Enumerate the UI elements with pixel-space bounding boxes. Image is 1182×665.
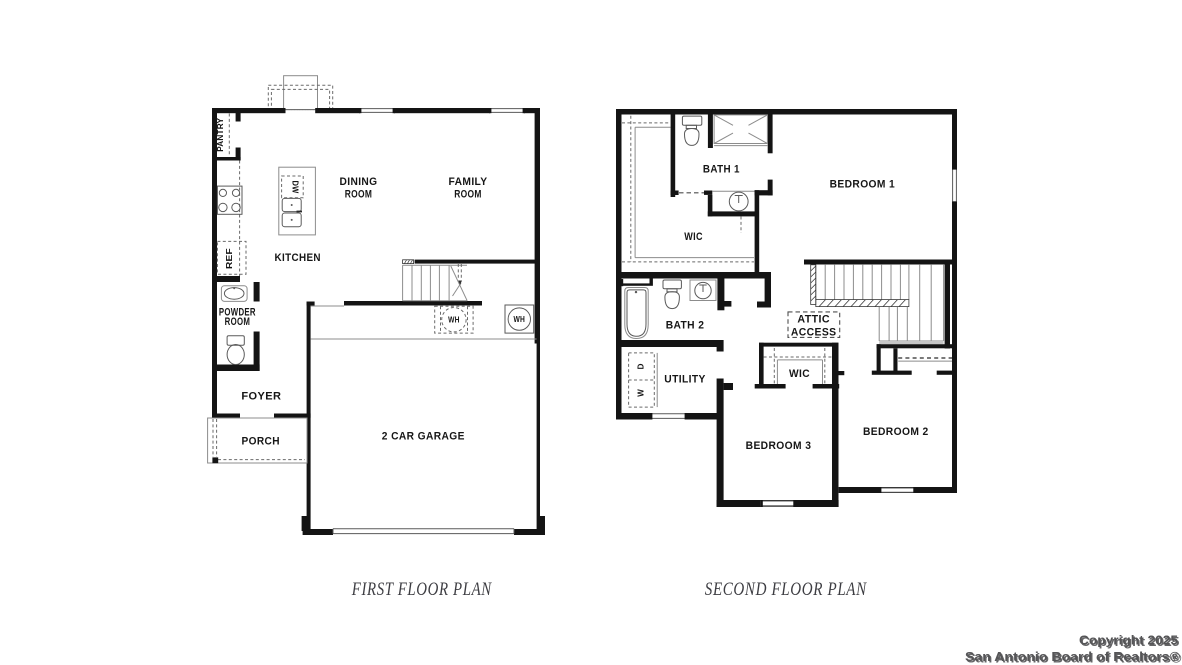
svg-text:W: W (636, 389, 645, 397)
svg-text:Copyright 2025: Copyright 2025 (1080, 635, 1179, 649)
svg-text:ROOM: ROOM (345, 188, 373, 200)
svg-text:WH: WH (514, 315, 526, 324)
svg-text:ACCESS: ACCESS (791, 326, 837, 338)
svg-text:BEDROOM 3: BEDROOM 3 (746, 440, 812, 452)
svg-text:ATTIC: ATTIC (797, 314, 830, 326)
svg-text:UTILITY: UTILITY (664, 374, 706, 386)
svg-text:BEDROOM 2: BEDROOM 2 (863, 426, 929, 438)
svg-text:WH: WH (448, 315, 460, 324)
svg-text:ROOM: ROOM (454, 188, 482, 200)
svg-text:BEDROOM 1: BEDROOM 1 (830, 179, 896, 191)
svg-text:SECOND FLOOR PLAN: SECOND FLOOR PLAN (705, 579, 867, 600)
svg-text:BATH 2: BATH 2 (666, 319, 705, 331)
svg-text:BATH 1: BATH 1 (703, 163, 740, 175)
svg-text:FOYER: FOYER (241, 391, 281, 403)
svg-text:WIC: WIC (684, 231, 703, 243)
svg-text:PANTRY: PANTRY (216, 117, 225, 151)
svg-text:DINING: DINING (340, 176, 378, 188)
svg-text:FIRST FLOOR PLAN: FIRST FLOOR PLAN (351, 579, 492, 600)
svg-text:WIC: WIC (789, 368, 810, 380)
svg-text:DW: DW (291, 181, 300, 194)
svg-text:ROOM: ROOM (225, 316, 251, 328)
svg-text:REF: REF (225, 248, 234, 269)
svg-text:2 CAR GARAGE: 2 CAR GARAGE (382, 430, 465, 442)
svg-text:KITCHEN: KITCHEN (275, 252, 321, 264)
svg-text:PORCH: PORCH (242, 435, 280, 447)
svg-text:FAMILY: FAMILY (449, 176, 488, 188)
svg-text:San Antonio Board of Realtors®: San Antonio Board of Realtors® (966, 651, 1182, 665)
svg-text:D: D (636, 363, 645, 369)
